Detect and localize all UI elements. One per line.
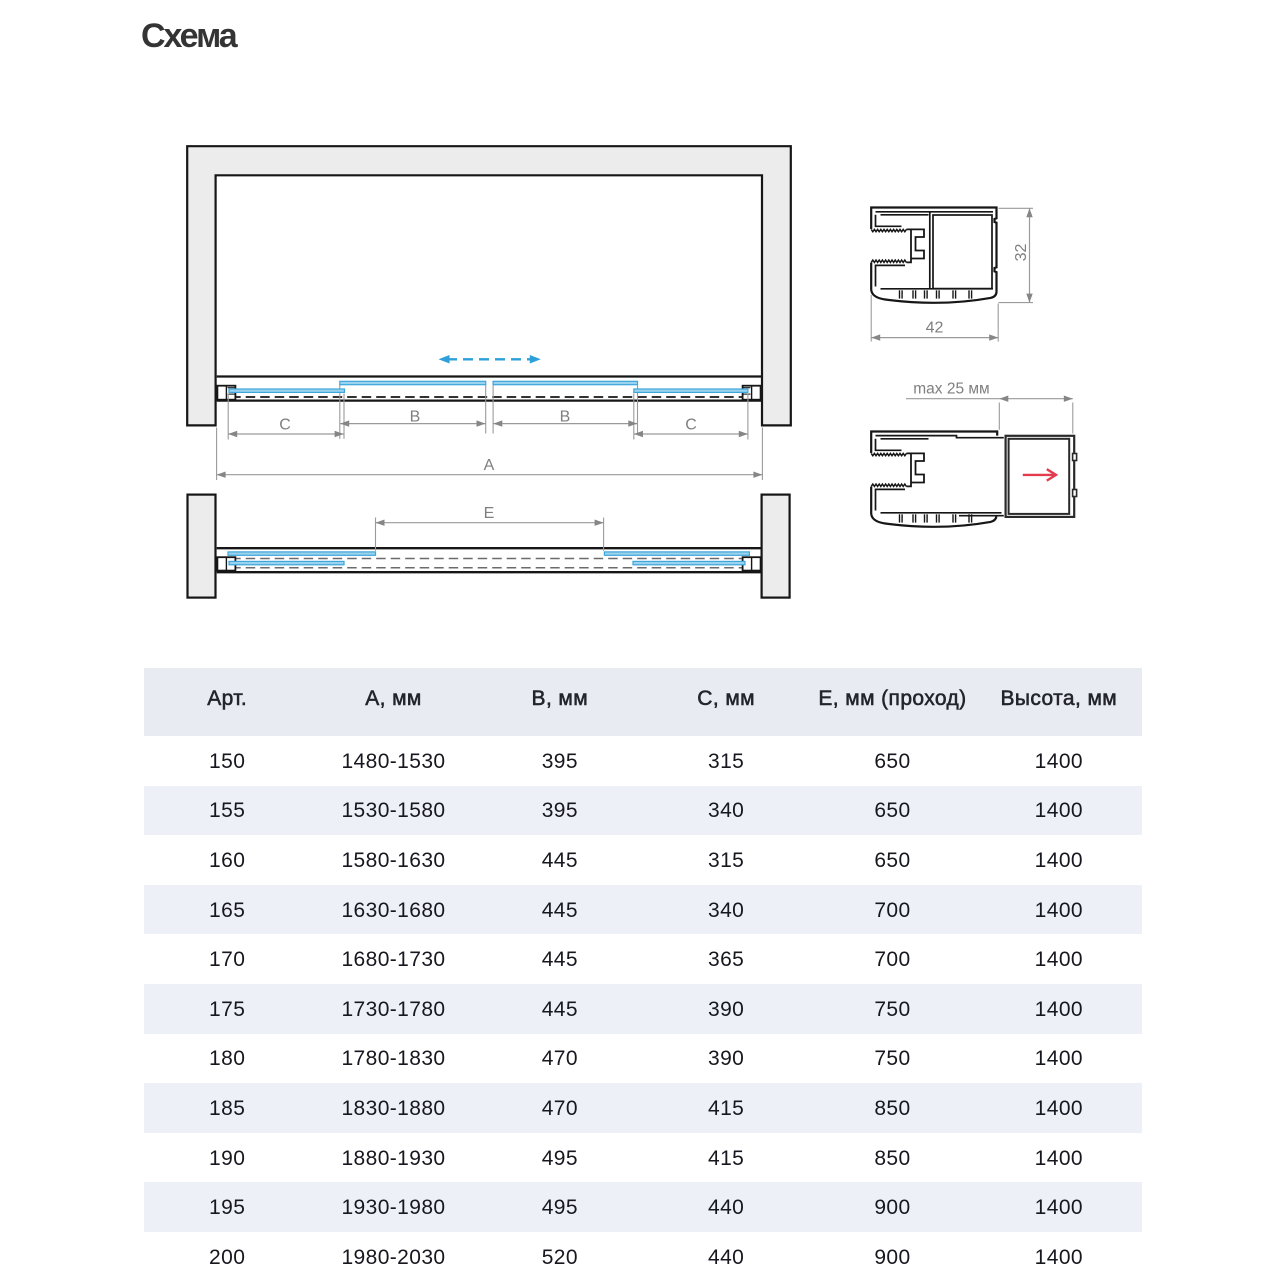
svg-text:E: E bbox=[484, 505, 495, 522]
svg-text:B: B bbox=[410, 409, 421, 426]
svg-text:42: 42 bbox=[926, 320, 944, 337]
svg-text:B: B bbox=[560, 409, 571, 426]
svg-text:C: C bbox=[279, 417, 291, 434]
svg-text:32: 32 bbox=[1013, 244, 1030, 262]
svg-text:C: C bbox=[685, 417, 697, 434]
svg-text:A: A bbox=[484, 457, 495, 474]
svg-text:max 25 мм: max 25 мм bbox=[913, 381, 989, 398]
